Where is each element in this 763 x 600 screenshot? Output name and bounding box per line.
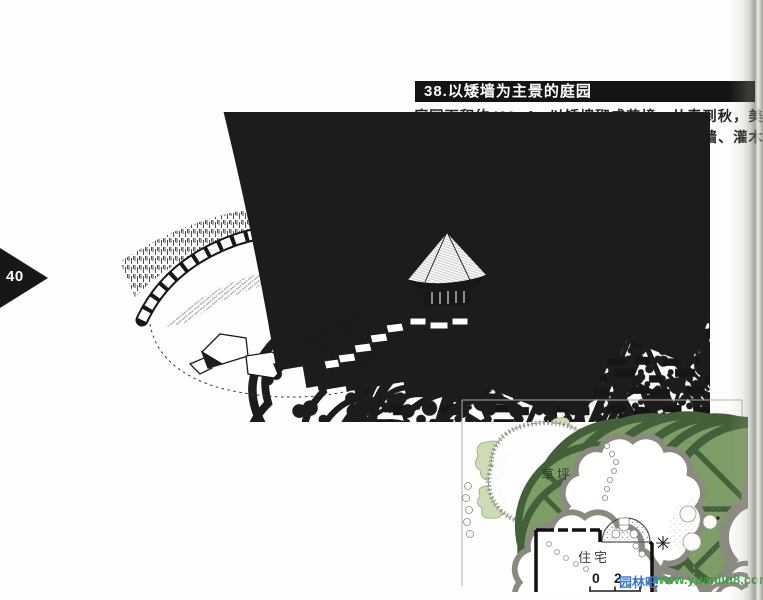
section-title-bar: 38.以矮墙为主景的庭园	[415, 81, 755, 102]
watermark-site-url: www.yuanlin8.com	[654, 572, 763, 587]
scale-start-number: 0	[592, 570, 600, 586]
watermark-site-name: 园林吧	[619, 572, 658, 591]
section-title: 38.以矮墙为主景的庭园	[424, 83, 592, 100]
book-page-scan: 38.以矮墙为主景的庭园 庭园面积约430m²，以矮墙砌成花境，从春到秋，美丽的…	[0, 0, 763, 600]
plan-star-plant	[656, 536, 670, 550]
plan-house-label: 住宅	[578, 547, 610, 566]
page-number: 40	[6, 268, 34, 285]
plan-lawn-label: 草坪	[541, 464, 573, 483]
garden-perspective-sketch	[50, 112, 710, 422]
gazebo-finial	[445, 217, 449, 221]
